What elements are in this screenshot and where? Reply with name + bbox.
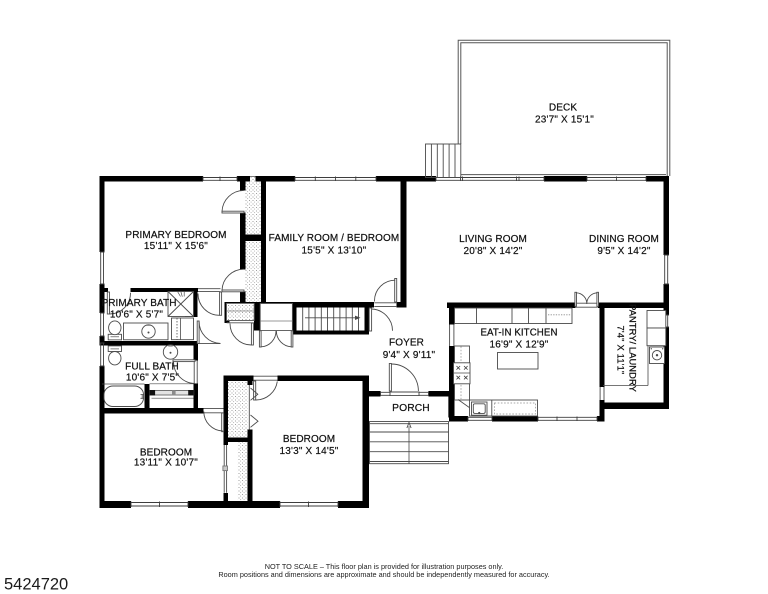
svg-text:15'11" X 15'6": 15'11" X 15'6" [144,241,208,252]
svg-text:9'4" X 9'11": 9'4" X 9'11" [383,350,436,361]
svg-text:9'5" X 14'2": 9'5" X 14'2" [597,246,651,257]
svg-text:PORCH: PORCH [392,403,430,414]
svg-text:10'6" X 5'7": 10'6" X 5'7" [110,310,164,321]
svg-text:5424720: 5424720 [4,576,68,594]
svg-text:13'11" X 10'7": 13'11" X 10'7" [134,458,198,469]
svg-text:16'9" X 12'9": 16'9" X 12'9" [489,340,548,351]
svg-text:7'4" X 11'1": 7'4" X 11'1" [616,325,626,374]
svg-text:DINING ROOM: DINING ROOM [589,234,659,245]
svg-text:PRIMARY BATH: PRIMARY BATH [101,298,176,309]
svg-text:23'7" X 15'1": 23'7" X 15'1" [535,115,594,126]
svg-text:PANTRY/ LAUNDRY: PANTRY/ LAUNDRY [628,304,638,392]
svg-text:LIVING ROOM: LIVING ROOM [459,234,527,245]
svg-text:PRIMARY BEDROOM: PRIMARY BEDROOM [125,230,226,241]
svg-text:10'6" X 7'5": 10'6" X 7'5" [126,373,180,384]
svg-text:20'8" X 14'2": 20'8" X 14'2" [463,246,522,257]
svg-text:FOYER: FOYER [389,338,424,349]
svg-text:Room positions and dimensions: Room positions and dimensions are approx… [218,570,549,579]
svg-text:13'3" X 14'5": 13'3" X 14'5" [279,446,338,457]
svg-text:FAMILY ROOM / BEDROOM: FAMILY ROOM / BEDROOM [269,233,400,244]
svg-text:FULL BATH: FULL BATH [125,362,179,373]
svg-text:EAT-IN KITCHEN: EAT-IN KITCHEN [480,328,557,339]
svg-text:15'5" X 13'10": 15'5" X 13'10" [302,246,367,257]
svg-text:DECK: DECK [549,103,577,114]
svg-text:BEDROOM: BEDROOM [283,434,335,445]
